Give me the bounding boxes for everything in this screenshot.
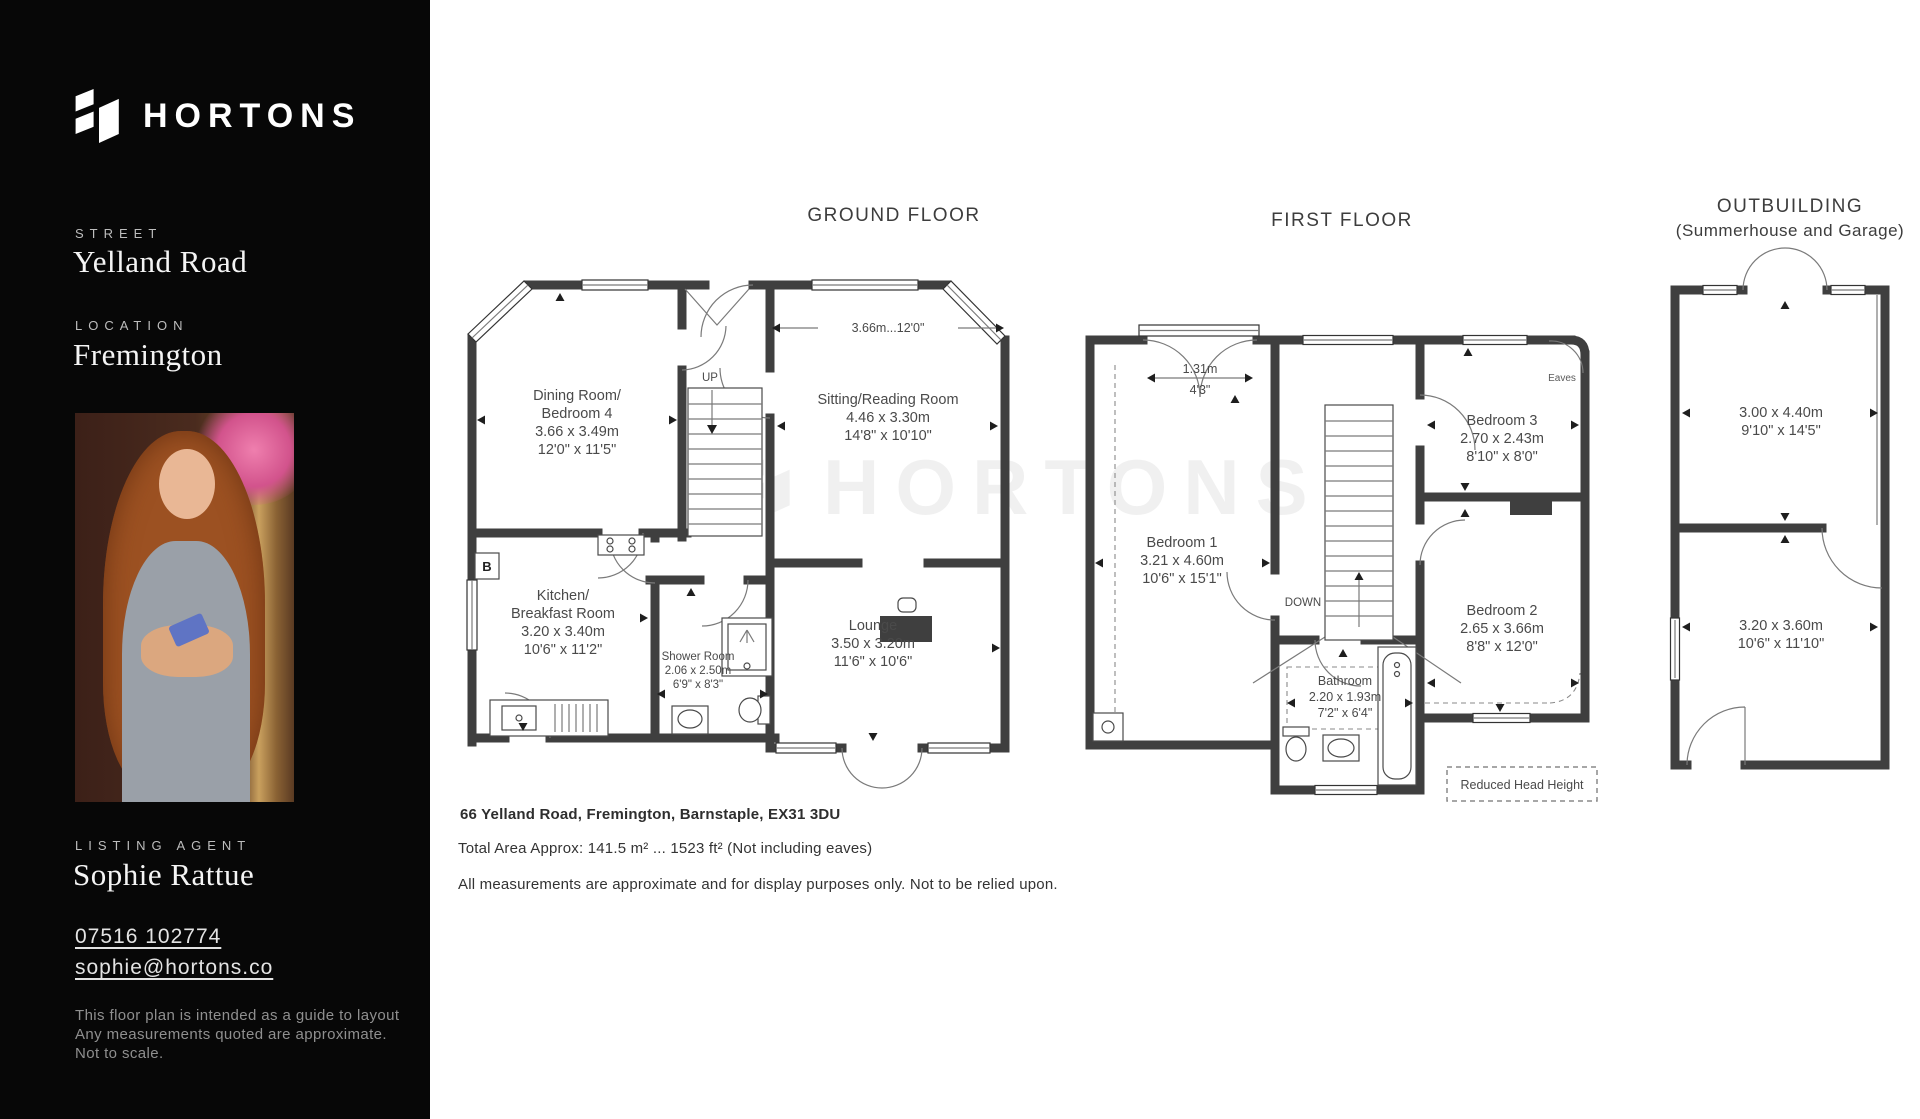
total-area: Total Area Approx: 141.5 m² ... 1523 ft²… (458, 840, 872, 857)
brand-name: HORTONS (143, 97, 361, 136)
agent-email-link[interactable]: sophie@hortons.co (75, 956, 273, 980)
ground-stairs (688, 388, 762, 536)
outbuilding-room2-metric: 3.20 x 3.60m (1739, 618, 1823, 634)
street-value: Yelland Road (73, 244, 247, 280)
disclaimer-line-3: Not to scale. (75, 1044, 399, 1063)
outbuilding-room2-imperial: 10'6" x 11'10" (1738, 636, 1825, 652)
outbuilding-plan: 3.00 x 4.40m 9'10" x 14'5" 3.20 x 3.60m … (1655, 245, 1915, 805)
outbuilding-arrows (1682, 301, 1878, 632)
first-stairs (1325, 405, 1393, 640)
shower-room-metric: 2.06 x 2.50m (665, 665, 731, 677)
sitting-room-imperial: 14'8" x 10'10" (844, 428, 932, 444)
agent-name: Sophie Rattue (73, 857, 254, 893)
bathroom-metric: 2.20 x 1.93m (1309, 690, 1381, 704)
bedroom1-imperial: 10'6" x 15'1" (1142, 571, 1222, 587)
ground-dimension: 3.66m...12'0" (772, 321, 1004, 335)
bedroom3-name: Bedroom 3 (1467, 413, 1538, 429)
bathroom-imperial: 7'2" x 6'4" (1318, 706, 1373, 720)
dining-room-name-1: Dining Room/ (533, 388, 622, 404)
dining-room-imperial: 12'0" x 11'5" (538, 442, 616, 458)
outbuilding-room1-imperial: 9'10" x 14'5" (1741, 423, 1821, 439)
disclaimer-line-1: This floor plan is intended as a guide t… (75, 1006, 399, 1025)
stairs-down-label: DOWN (1285, 597, 1321, 609)
floorplan-page: { "sidebar": { "brand": "HORTONS", "stre… (0, 0, 1920, 1119)
bedroom2-imperial: 8'8" x 12'0" (1466, 639, 1537, 655)
dim-imperial-label: 4'3" (1190, 383, 1211, 397)
sitting-room-metric: 4.46 x 3.30m (846, 410, 930, 426)
first-floor-title: FIRST FLOOR (1122, 210, 1562, 232)
sidebar-disclaimer: This floor plan is intended as a guide t… (75, 1006, 399, 1064)
agent-photo (75, 413, 294, 802)
outbuilding-title: OUTBUILDING (1660, 196, 1920, 218)
street-label: STREET (75, 226, 162, 241)
kitchen-name-2: Breakfast Room (511, 606, 615, 622)
property-address: 66 Yelland Road, Fremington, Barnstaple,… (460, 806, 840, 823)
stairs-up-label: UP (702, 372, 718, 384)
bedroom3-metric: 2.70 x 2.43m (1460, 431, 1544, 447)
sitting-room-name: Sitting/Reading Room (817, 392, 958, 408)
agent-label: LISTING AGENT (75, 838, 251, 853)
outbuilding-room1-metric: 3.00 x 4.40m (1739, 405, 1823, 421)
bedroom1-name: Bedroom 1 (1147, 535, 1218, 551)
ground-floor-title: GROUND FLOOR (674, 205, 1114, 227)
sidebar: HORTONS STREET Yelland Road LOCATION Fre… (0, 0, 430, 1119)
location-label: LOCATION (75, 318, 189, 333)
brand-logo: HORTONS (72, 86, 361, 146)
hortons-logo-icon (72, 86, 126, 146)
bathroom-name: Bathroom (1318, 674, 1372, 688)
ground-floor-plan: 3.66m...12'0" Dining Room/ Bedroom 4 3.6… (460, 228, 1020, 808)
dim-note-label: 3.66m...12'0" (852, 321, 925, 335)
dim-metric-label: 1.31m (1183, 362, 1218, 376)
toilet-icon (1283, 727, 1309, 736)
lounge-metric: 3.50 x 3.20m (831, 636, 915, 652)
bedroom2-name: Bedroom 2 (1467, 603, 1538, 619)
outbuilding-subtitle: (Summerhouse and Garage) (1620, 221, 1920, 241)
boiler-label: B (482, 559, 491, 574)
wall-notch (1510, 497, 1552, 515)
first-floor-plan: 1.31m 4'3" Bedroom 1 3.21 x 4.60m 10'6" … (1075, 275, 1605, 810)
measurements-note: All measurements are approximate and for… (458, 876, 1058, 893)
reduced-head-height-label: Reduced Head Height (1461, 778, 1585, 792)
lounge-imperial: 11'6" x 10'6" (834, 654, 912, 670)
bedroom3-imperial: 8'10" x 8'0" (1466, 449, 1537, 465)
agent-phone-link[interactable]: 07516 102774 (75, 925, 221, 949)
kitchen-imperial: 10'6" x 11'2" (524, 642, 602, 658)
disclaimer-line-2: Any measurements quoted are approximate. (75, 1025, 399, 1044)
outbuilding-walls (1675, 290, 1885, 765)
shower-room-name: Shower Room (662, 651, 735, 663)
bedroom2-metric: 2.65 x 3.66m (1460, 621, 1544, 637)
dining-room-name-2: Bedroom 4 (542, 406, 613, 422)
kitchen-metric: 3.20 x 3.40m (521, 624, 605, 640)
hob-icon (598, 535, 644, 555)
outbuilding-doors (1687, 248, 1882, 765)
shower-room-imperial: 6'9" x 8'3" (673, 679, 723, 691)
location-value: Fremington (73, 337, 223, 373)
bedroom1-metric: 3.21 x 4.60m (1140, 553, 1224, 569)
eaves-label: Eaves (1548, 373, 1576, 384)
kitchen-name-1: Kitchen/ (537, 588, 590, 604)
lounge-name: Lounge (849, 618, 897, 634)
photo-face (159, 449, 215, 519)
dining-room-metric: 3.66 x 3.49m (535, 424, 619, 440)
